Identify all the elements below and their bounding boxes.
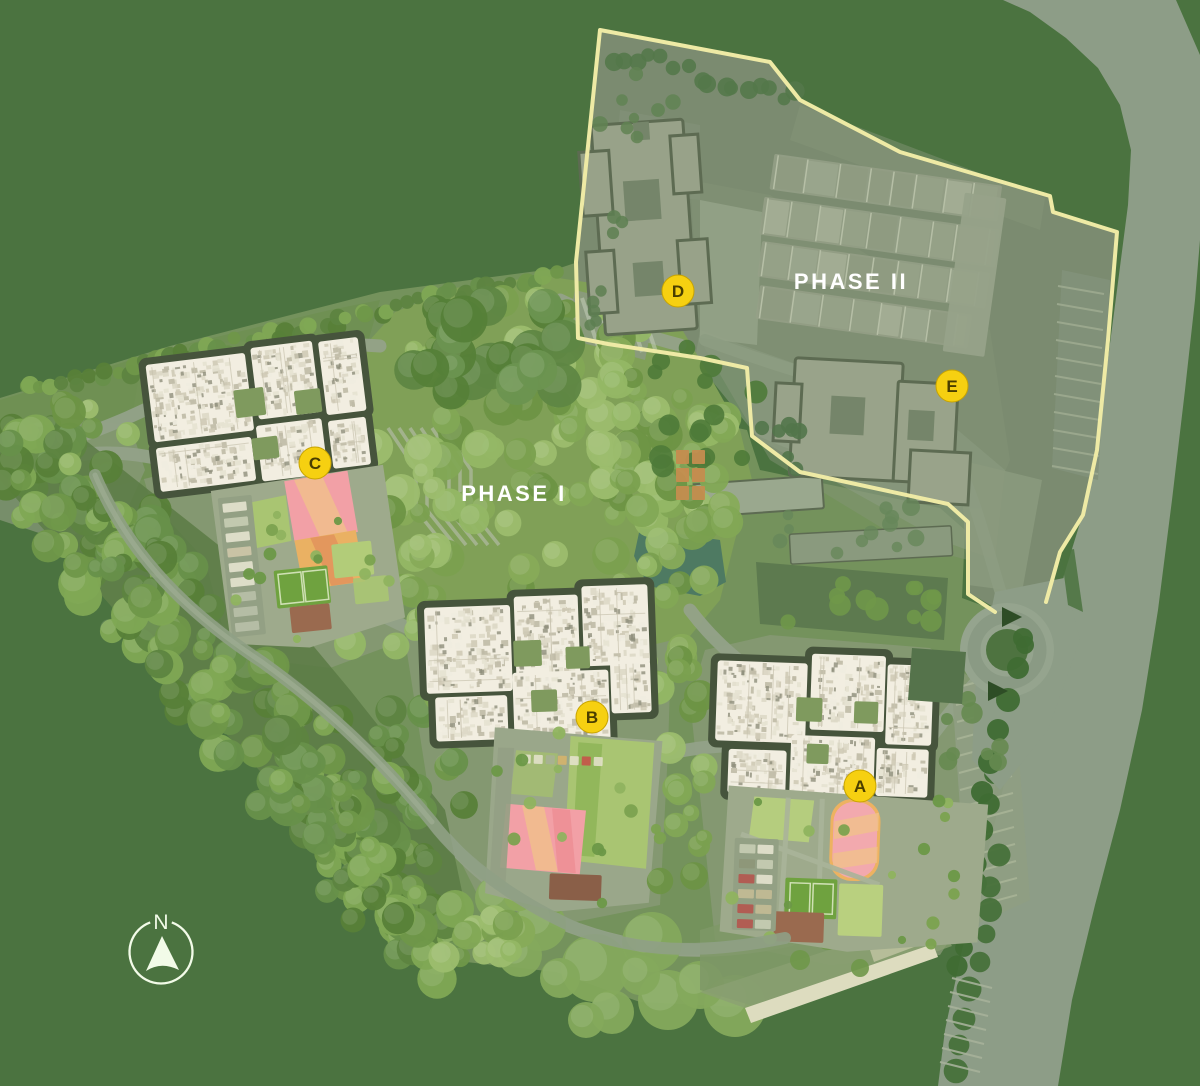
svg-text:PHASE I: PHASE I [461,481,567,506]
svg-text:D: D [672,282,684,301]
svg-text:C: C [309,454,321,473]
svg-text:B: B [586,708,598,727]
svg-text:N: N [153,911,168,934]
svg-text:PHASE II: PHASE II [794,269,908,294]
svg-text:E: E [946,377,957,396]
svg-text:A: A [854,777,866,796]
